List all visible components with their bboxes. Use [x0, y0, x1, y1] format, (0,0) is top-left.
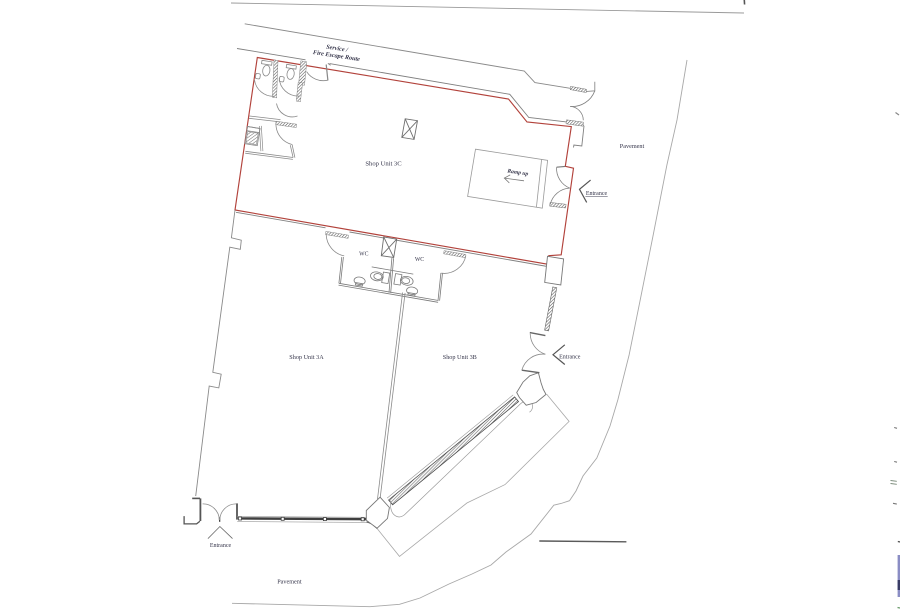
svg-text:WC: WC — [359, 252, 368, 258]
svg-text:Entrance: Entrance — [586, 191, 608, 197]
svg-text:Shop Unit 3B: Shop Unit 3B — [443, 354, 477, 361]
svg-text:WC: WC — [415, 257, 424, 263]
svg-text:Entrance: Entrance — [210, 543, 232, 549]
svg-text:Shop Unit 3C: Shop Unit 3C — [365, 161, 402, 168]
svg-text:Pavement: Pavement — [620, 143, 645, 150]
svg-text:Entrance: Entrance — [559, 355, 581, 361]
svg-text:Shop Unit 3A: Shop Unit 3A — [289, 354, 324, 361]
svg-text:Pavement: Pavement — [277, 579, 302, 586]
